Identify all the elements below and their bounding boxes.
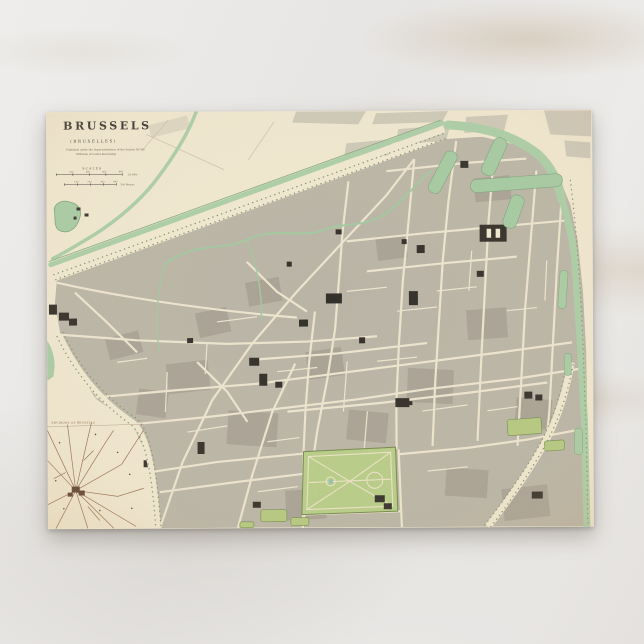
marble-background: ENVIRONS OF BRUSSELS BRUSSELS (BRUXELLES…: [0, 0, 644, 644]
paper-aging-vignette: [46, 110, 594, 528]
brussels-map: ENVIRONS OF BRUSSELS BRUSSELS (BRUXELLES…: [46, 110, 594, 529]
postcard: ENVIRONS OF BRUSSELS BRUSSELS (BRUXELLES…: [46, 110, 594, 529]
